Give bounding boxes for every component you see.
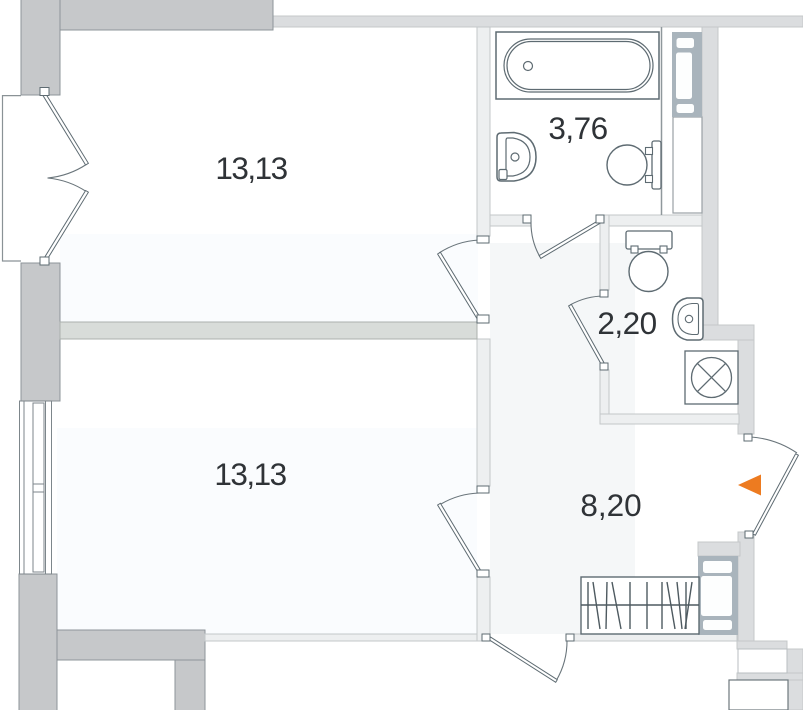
svg-text:13,13: 13,13 (215, 150, 287, 186)
svg-text:3,76: 3,76 (548, 110, 607, 146)
svg-text:8,20: 8,20 (580, 487, 641, 523)
svg-text:2,20: 2,20 (597, 305, 656, 341)
svg-text:13,13: 13,13 (214, 456, 286, 492)
